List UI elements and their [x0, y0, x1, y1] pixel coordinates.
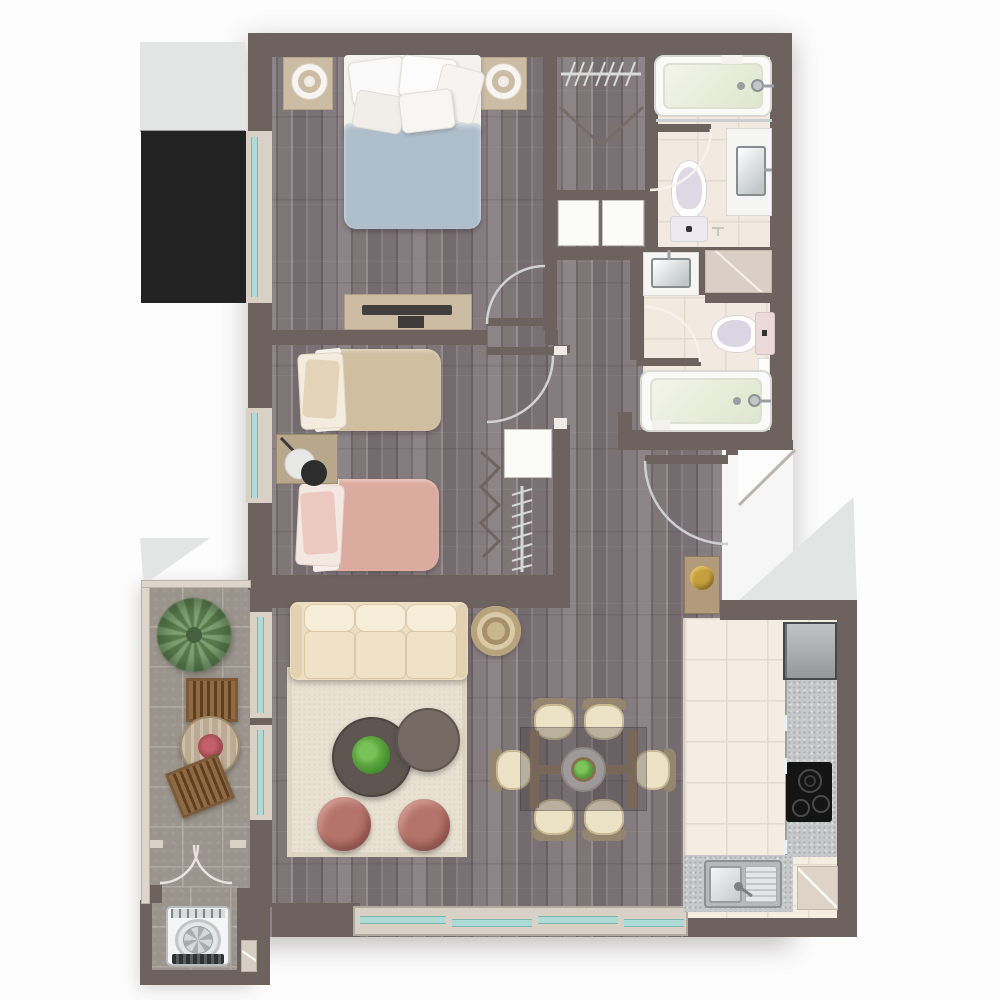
wall-right-upper	[770, 33, 792, 453]
sofa-back-cushion	[355, 604, 406, 632]
bathtub-top-drain	[737, 82, 745, 90]
coffee-table-small	[396, 708, 460, 772]
neighbor-gray-block	[140, 42, 245, 132]
washer-vent	[172, 954, 224, 964]
kitchen-sink-drainboard	[745, 866, 777, 903]
cooktop-burner-small-left	[792, 799, 810, 817]
bath2-sink	[651, 258, 691, 288]
pouf-right	[398, 799, 450, 851]
bed2-window-sill	[246, 408, 272, 503]
entry-flowers	[690, 566, 714, 590]
sofa-armrest-left	[291, 604, 302, 678]
cabinet-handle-3	[783, 840, 787, 854]
wall-balcony-divider-a	[250, 585, 272, 612]
bath1-toilet-button	[686, 226, 692, 232]
tv-media-box	[398, 316, 424, 328]
cabinet-handle-2	[783, 758, 787, 774]
dining-table-frame-left	[530, 731, 539, 808]
bathtub-mid-drain	[733, 397, 741, 405]
cooktop-burner-small-right	[812, 795, 830, 813]
french-door-jamb-left	[150, 840, 163, 848]
master-bed-duvet	[344, 123, 481, 229]
pouf-left	[317, 797, 371, 851]
bathtub-mid-step	[652, 420, 670, 430]
pillow	[398, 88, 456, 134]
coffee-table-plant	[352, 736, 390, 774]
master-bed	[344, 55, 481, 229]
wall-bath2-left-stub	[618, 412, 632, 436]
lamp-left	[291, 63, 328, 100]
jute-pouf	[471, 606, 521, 656]
tv-screen	[362, 305, 452, 315]
twin-pink-pillow-inner	[300, 491, 338, 555]
lamp-right	[485, 63, 522, 100]
bathtub-top-inner	[663, 63, 763, 109]
sofa-back-cushion	[304, 604, 355, 632]
bath2-door-leaf	[637, 358, 701, 366]
wall-bedroom-separator-right	[545, 330, 558, 345]
bathtub-top-faucet	[751, 79, 764, 92]
bed2-door-jamb-top	[554, 346, 567, 355]
cabinet-handle-1	[783, 715, 787, 731]
sofa-seat-cushion	[406, 631, 457, 679]
sofa	[290, 602, 468, 680]
bath2-toilet-seat	[717, 320, 751, 347]
bed2-window-glass	[251, 413, 258, 498]
wall-bedroom-separator-left	[268, 330, 487, 345]
wall-left-top	[248, 33, 272, 133]
wall-laundry-nub-left	[150, 885, 162, 903]
washer-fan	[183, 926, 213, 954]
dark-shaft-block	[141, 131, 246, 303]
wall-bed2-right-bottom	[553, 425, 570, 575]
wall-living-bottom-left	[272, 903, 360, 937]
bath2-toilet-button	[762, 330, 767, 336]
washer-control-panel	[171, 909, 225, 918]
bath1-glass-screen	[656, 119, 772, 122]
living-bottom-window-glass-1	[360, 916, 446, 924]
bath1-toilet-seat	[676, 167, 702, 209]
bathtub-mid-inner	[650, 378, 762, 424]
dining-table-frame-right	[628, 731, 637, 808]
kitchen-faucet	[734, 882, 743, 891]
balcony-rail-top	[141, 580, 251, 588]
twin-beige-pillow-inner	[302, 359, 340, 419]
sofa-back-cushion	[406, 604, 457, 632]
sofa-seat-cushion	[304, 631, 355, 679]
balcony-rail-left	[141, 582, 150, 904]
wall-left-mid	[248, 300, 272, 408]
living-bottom-window-glass-3	[538, 916, 618, 924]
entry-door-leaf	[645, 455, 728, 464]
living-bottom-window-glass-2	[452, 919, 532, 927]
dining-centerpiece-plant	[574, 760, 593, 779]
twin-bed-beige	[299, 349, 441, 431]
bed2-door-leaf	[487, 347, 553, 355]
laundry-threshold-pad	[241, 940, 257, 972]
wall-kitchen-right	[837, 600, 857, 937]
bathtub-mid-faucet	[748, 394, 761, 407]
living-bottom-window-glass-4	[624, 919, 684, 927]
master-window-glass	[251, 137, 258, 297]
wall-balcony-divider-b	[250, 718, 272, 725]
storage-unit-right	[602, 200, 644, 246]
wall-top	[250, 33, 790, 57]
living-window-glass-b	[257, 730, 264, 815]
balcony-corner-triangle	[140, 538, 210, 585]
master-door-leaf	[487, 318, 545, 326]
bathtub-top-niche	[722, 55, 742, 64]
wall-kitchen-top	[720, 600, 843, 620]
fridge	[783, 622, 837, 680]
living-window-glass-a	[257, 617, 264, 713]
twin-bed-pink	[297, 479, 439, 571]
wall-bottom	[683, 918, 857, 937]
storage-unit-left	[558, 200, 599, 246]
wall-bath2-left	[630, 260, 644, 360]
sofa-seat-cushion	[355, 631, 406, 679]
bed2-closet-shelf	[504, 429, 552, 478]
sofa-armrest-right	[456, 604, 467, 678]
master-window-sill	[246, 131, 272, 303]
bath2-shower	[705, 250, 772, 293]
floor-plan	[0, 0, 1000, 1000]
appliance-pad	[797, 866, 838, 910]
bed2-door-jamb-bottom	[554, 418, 567, 429]
wall-storage-top	[543, 190, 645, 200]
french-door-jamb-right	[230, 840, 246, 848]
bath1-sink	[736, 146, 766, 196]
bed2-nightstand	[276, 434, 338, 484]
bath1-door-leaf	[648, 124, 711, 132]
palm-plant-center	[186, 627, 202, 643]
cooktop-burner-large	[798, 769, 822, 793]
